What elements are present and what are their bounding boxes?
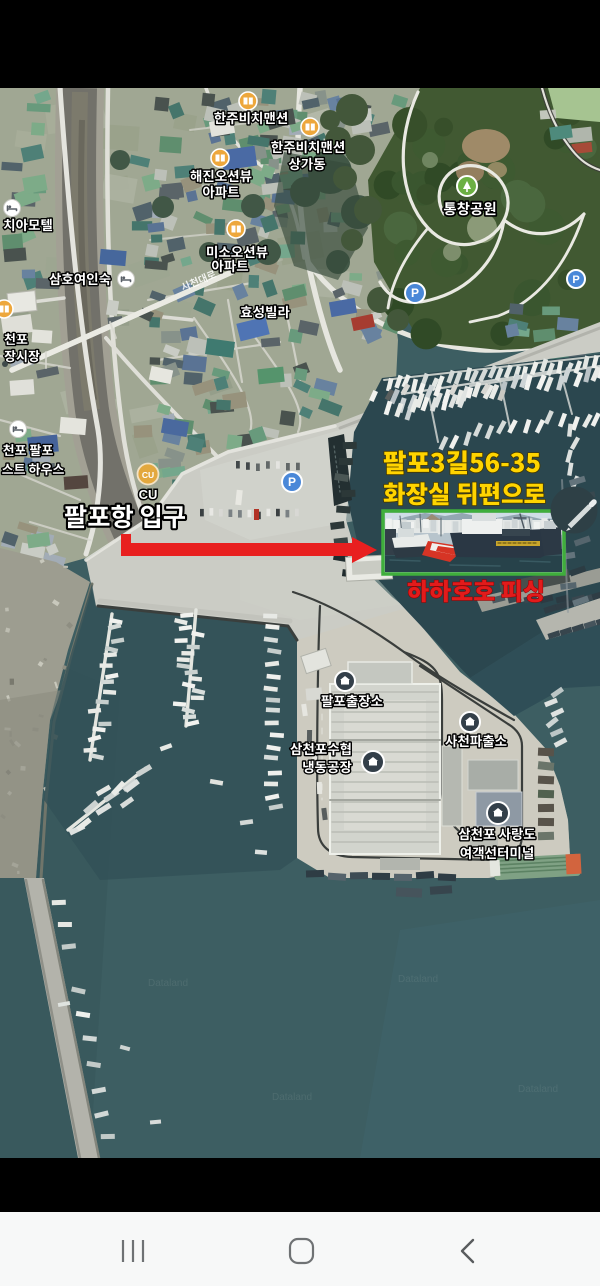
svg-text:P: P xyxy=(411,286,419,300)
svg-text:P: P xyxy=(572,274,579,286)
svg-text:Dataland: Dataland xyxy=(148,978,188,989)
svg-text:CU: CU xyxy=(139,487,158,502)
svg-text:Dataland: Dataland xyxy=(518,1084,558,1095)
svg-text:Dataland: Dataland xyxy=(398,974,438,985)
svg-text:CU: CU xyxy=(142,470,154,480)
svg-text:Dataland: Dataland xyxy=(272,1092,312,1103)
svg-text:P: P xyxy=(288,475,296,489)
